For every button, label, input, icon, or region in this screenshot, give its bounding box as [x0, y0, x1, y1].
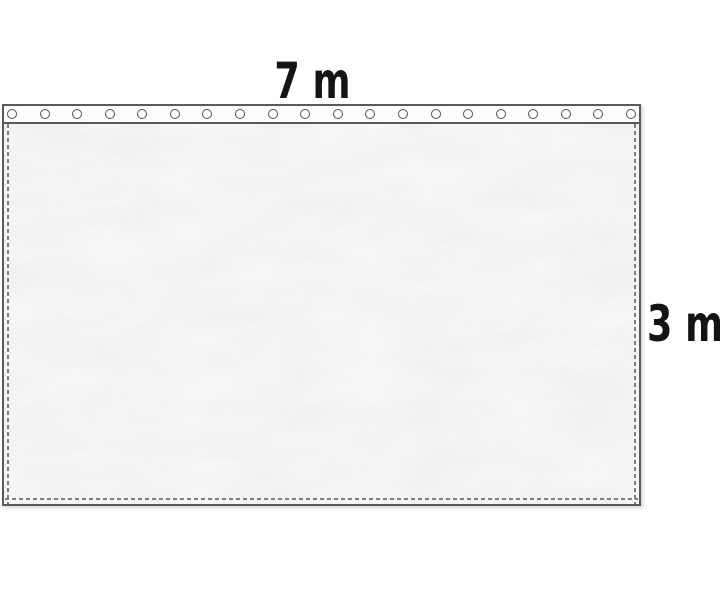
tarp-panel — [2, 104, 641, 506]
width-dimension-label: 7 m — [84, 56, 540, 106]
tarp-diagram: 7 m 3 m — [0, 0, 720, 600]
eyelet-icon — [593, 109, 603, 119]
stitch-line-right — [634, 124, 636, 504]
eyelet-icon — [365, 109, 375, 119]
eyelet-icon — [528, 109, 538, 119]
eyelet-icon — [105, 109, 115, 119]
eyelet-icon — [202, 109, 212, 119]
fabric-area — [4, 124, 639, 504]
height-dimension-label: 3 m — [647, 299, 720, 349]
eyelet-icon — [463, 109, 473, 119]
eyelet-icon — [496, 109, 506, 119]
stitch-line-bottom — [5, 498, 638, 500]
eyelet-icon — [333, 109, 343, 119]
eyelet-icon — [398, 109, 408, 119]
eyelet-icon — [300, 109, 310, 119]
fabric-texture — [4, 124, 639, 504]
eyelet-icon — [626, 109, 636, 119]
eyelet-icon — [235, 109, 245, 119]
eyelet-icon — [561, 109, 571, 119]
eyelet-icon — [431, 109, 441, 119]
eyelet-icon — [40, 109, 50, 119]
eyelet-icon — [7, 109, 17, 119]
eyelet-icon — [170, 109, 180, 119]
stitch-line-left — [7, 124, 9, 504]
eyelet-icon — [268, 109, 278, 119]
grommet-band — [4, 106, 639, 124]
eyelet-icon — [72, 109, 82, 119]
eyelet-icon — [137, 109, 147, 119]
